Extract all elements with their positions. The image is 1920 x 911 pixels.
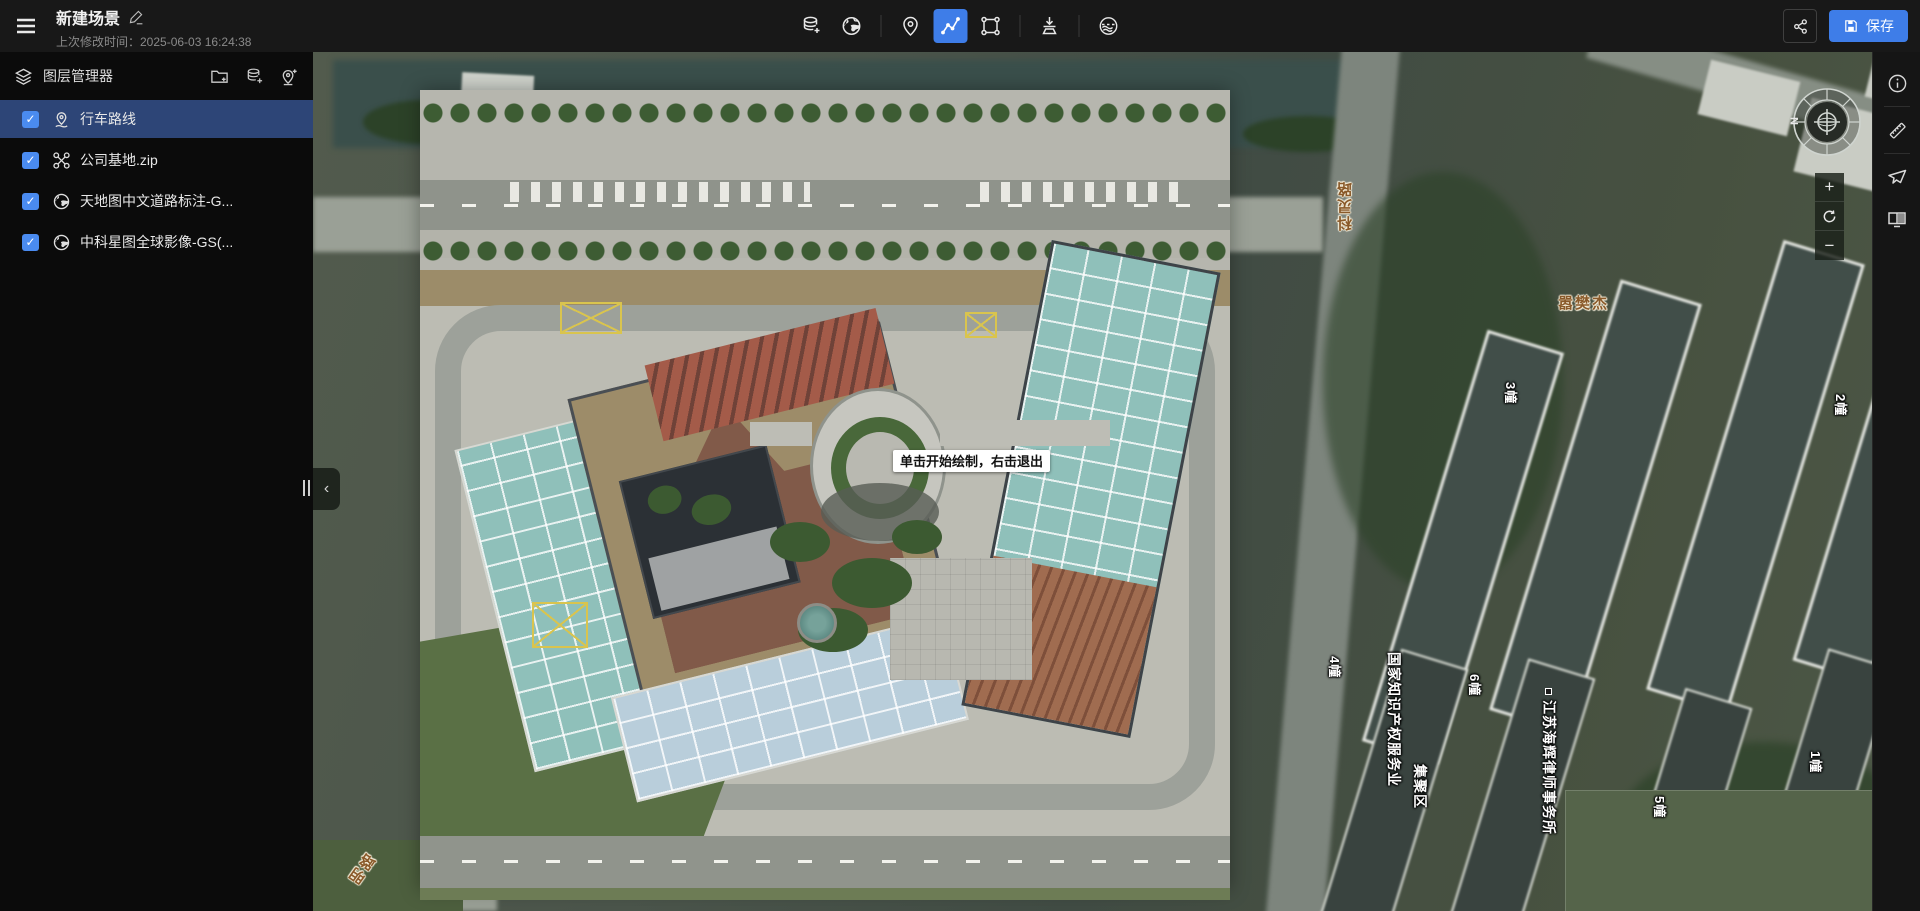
sidebar-resize-grip[interactable] [303,480,311,496]
layer-checkbox[interactable]: ✓ [22,234,39,251]
poi-label: 集聚区 [1410,764,1430,809]
share-button[interactable] [1783,9,1817,43]
toolbar-separator [881,15,882,37]
campus-road-bottom [420,836,1230,888]
chevron-left-icon: ‹ [324,480,329,498]
layer-label: 公司基地.zip [80,150,158,170]
layer-manager-title: 图层管理器 [43,66,113,86]
reset-view-button[interactable] [1815,202,1844,231]
measure-button[interactable] [1873,113,1920,147]
map-canvas[interactable]: 科灵路 嚣樊杰 明路 3幢 2幢 4幢 6幢 5幢 1幢 国家知识产权服务业 集… [313,52,1872,911]
globe-icon [51,233,71,252]
route-marker-icon [51,110,71,129]
scene-title: 新建场景 [56,5,120,29]
rail-separator [1884,153,1910,154]
last-modified-time: 上次修改时间：2025-06-03 16:24:38 [56,33,251,50]
poi-marker-dot [1545,688,1552,695]
jet-icon [1886,166,1908,188]
campus-road-top [420,180,1230,230]
layer-checkbox[interactable]: ✓ [22,152,39,169]
layer-checkbox[interactable]: ✓ [22,193,39,210]
building-number-label: 1幢 [1807,751,1826,773]
building-number-label: 3幢 [1502,382,1521,404]
poi-label: 江苏海辉律师事务所 [1539,700,1559,835]
layer-row-geovis-imagery[interactable]: ✓ 中科星图全球影像-GS(... [0,223,313,261]
globe-tool[interactable] [835,9,869,43]
drone-icon [51,151,71,170]
layers-icon [14,67,33,86]
share-icon [1792,18,1809,35]
orthophoto-overlay [420,90,1230,890]
split-screen-icon [1886,208,1908,230]
layer-row-company-base[interactable]: ✓ 公司基地.zip [0,141,313,179]
scene-title-block: 新建场景 上次修改时间：2025-06-03 16:24:38 [56,5,251,50]
zoom-controls: + − [1815,173,1844,260]
ruler-icon [1887,120,1908,141]
building-number-label: 5幢 [1651,796,1670,818]
database-add-tool[interactable] [795,9,829,43]
building-number-label: 2幢 [1832,394,1851,416]
compass-widget[interactable]: N [1785,82,1865,162]
info-button[interactable] [1873,66,1920,100]
poi-label: 国家知识产权服务业 [1384,652,1404,787]
terrain-flatten-tool[interactable] [1033,9,1067,43]
building-number-label: 6幢 [1466,674,1485,696]
database-add-icon[interactable] [245,67,264,86]
fountain [797,603,837,643]
layer-label: 行车路线 [80,109,136,129]
edit-pencil-icon[interactable] [128,9,144,25]
zoom-in-button[interactable]: + [1815,173,1844,202]
save-label: 保存 [1866,16,1894,36]
globe-icon [51,192,71,211]
menu-button[interactable] [12,13,40,39]
layer-label: 中科星图全球影像-GS(... [80,232,233,252]
layer-row-route[interactable]: ✓ 行车路线 [0,100,313,138]
toolbar-separator [1079,15,1080,37]
sidebar-collapse-button[interactable]: ‹ [313,468,340,510]
draw-polygon-tool[interactable] [974,9,1008,43]
top-bar: 新建场景 上次修改时间：2025-06-03 16:24:38 [0,0,1920,52]
paved-square [890,558,1032,680]
satellite-tile-seam [1565,790,1872,911]
save-floppy-icon [1843,18,1859,34]
layer-row-tianditu-roads[interactable]: ✓ 天地图中文道路标注-G... [0,182,313,220]
right-tool-rail [1872,52,1920,911]
road-name-label: 嚣樊杰 [1558,292,1609,313]
building-number-label: 4幢 [1326,656,1345,678]
layer-checkbox[interactable]: ✓ [22,111,39,128]
save-button[interactable]: 保存 [1829,10,1908,42]
flood-analysis-tool[interactable] [1092,9,1126,43]
zoom-out-button[interactable]: − [1815,231,1844,260]
layer-manager-header: 图层管理器 [0,52,313,100]
draw-polyline-tool[interactable] [934,9,968,43]
compass-north-label: N [1789,117,1801,125]
toolbar-separator [1020,15,1021,37]
folder-add-icon[interactable] [210,67,229,86]
split-screen-button[interactable] [1873,202,1920,236]
topbar-actions: 保存 [1783,9,1908,43]
marker-add-icon[interactable] [280,67,299,86]
info-icon [1887,73,1908,94]
main-toolbar [795,0,1126,52]
location-pin-tool[interactable] [894,9,928,43]
hamburger-icon [15,16,37,36]
flight-button[interactable] [1873,160,1920,194]
layer-manager-panel: 图层管理器 ✓ 行车路线 ✓ 公司基地.zip ✓ 天 [0,52,313,911]
road-name-label: 科灵路 [1335,180,1356,231]
rail-separator [1884,106,1910,107]
layer-label: 天地图中文道路标注-G... [80,191,233,211]
draw-hint-tooltip: 单击开始绘制，右击退出 [893,450,1050,472]
